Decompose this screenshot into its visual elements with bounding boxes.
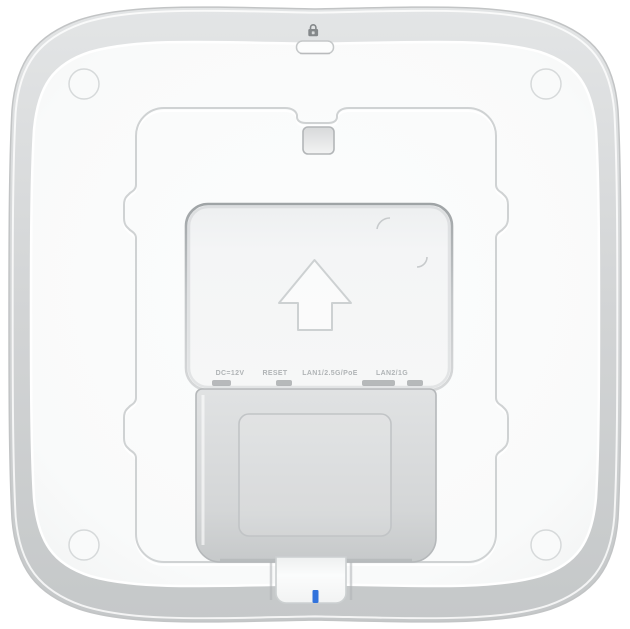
label-reset: RESET: [262, 370, 287, 378]
port-slit-lan2: [407, 380, 423, 386]
port-compartment: [196, 389, 436, 562]
kensington-slot: [297, 41, 334, 54]
cable-exit-tab: [276, 557, 346, 603]
port-slit-reset: [276, 380, 292, 386]
mounting-clip-tab: [303, 127, 334, 154]
label-lan1: LAN1/2.5G/PoE: [302, 370, 358, 378]
label-power: DC=12V: [216, 370, 245, 378]
screw-cover-bottom-right: [531, 530, 561, 560]
status-led: [313, 590, 319, 603]
screw-cover-top-left: [69, 69, 99, 99]
screw-cover-top-right: [531, 69, 561, 99]
label-lan2: LAN2/1G: [376, 370, 408, 378]
device-photo: DC=12V RESET LAN1/2.5G/PoE LAN2/1G: [0, 0, 630, 629]
device-illustration: [0, 0, 630, 629]
screw-cover-bottom-left: [69, 530, 99, 560]
cable-cover-plate: [239, 414, 391, 536]
port-slit-power: [212, 380, 231, 386]
port-slit-lan1: [362, 380, 395, 386]
